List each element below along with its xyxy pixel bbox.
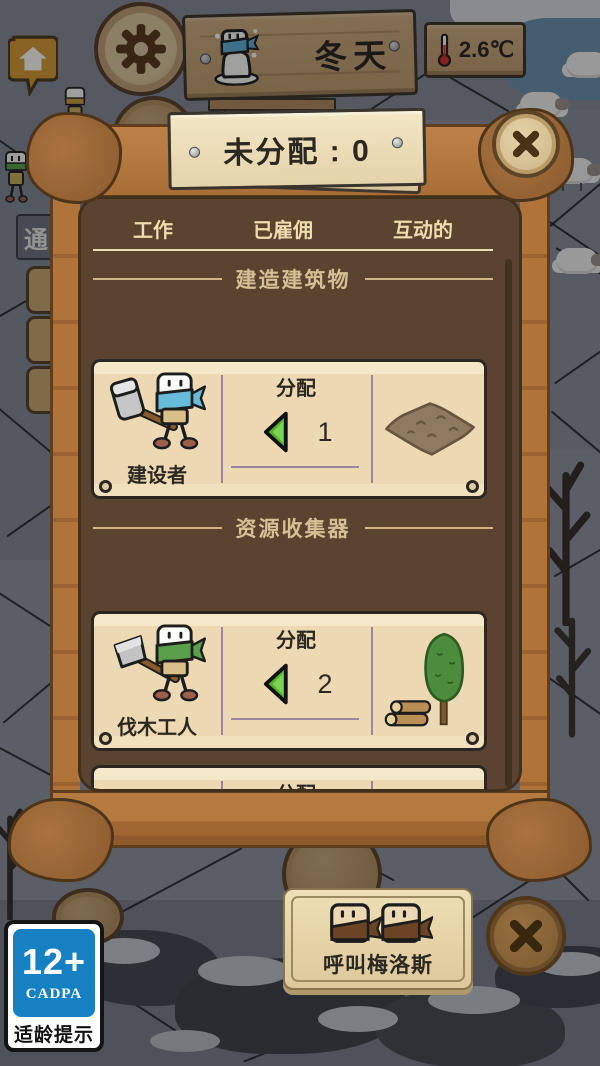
tab-hired[interactable]: 已雇佣: [247, 214, 319, 243]
worker-portrait: 建设者: [94, 362, 220, 496]
nail: [392, 137, 403, 148]
worker-card-lumberjack: 伐木工人 分配 2: [91, 611, 487, 751]
call-melos-label: 呼叫梅洛斯: [285, 949, 471, 979]
assign-label: 分配: [224, 778, 368, 792]
close-footer-button[interactable]: [486, 896, 566, 976]
dirt-plot-icon: [382, 400, 478, 458]
tab-interactive[interactable]: 互动的: [387, 214, 459, 243]
card-divider: [221, 375, 223, 483]
worker-name: 建设者: [94, 459, 220, 488]
divider-line: [93, 527, 222, 529]
scrollbar[interactable]: [505, 259, 512, 787]
call-melos-button[interactable]: 呼叫梅洛斯: [283, 888, 473, 990]
logs-and-tree-icon: [384, 630, 476, 732]
divider-line: [93, 278, 222, 280]
worker-card-builder: 建设者 分配 1: [91, 359, 487, 499]
unassigned-banner: 未分配 : 0: [167, 108, 426, 190]
nail: [189, 147, 200, 158]
age-rating-age: 12+: [22, 944, 86, 980]
worker-portrait: 伐木工人: [94, 614, 220, 748]
assign-controls: 2: [228, 658, 368, 710]
tab-bar: 工作 已雇佣 互动的: [93, 211, 493, 245]
divider-line: [365, 527, 494, 529]
age-rating-org: CADPA: [26, 986, 82, 1003]
assign-label: 分配: [224, 372, 368, 401]
builder-figure: [107, 372, 207, 452]
worker-card-partial: 分配: [91, 765, 487, 792]
frame-handle: [486, 798, 592, 882]
worker-head: [135, 790, 179, 792]
divider-line: [365, 278, 494, 280]
assignment-modal: 未分配 : 0 工作 已雇佣 互动的 建造建筑物: [0, 0, 600, 1066]
assign-controls: 1: [228, 406, 368, 458]
worker-portrait: [94, 768, 220, 792]
section-header-buildings: 建造建筑物: [93, 263, 493, 295]
frame-handle: [26, 112, 122, 204]
two-villagers-icon: [329, 902, 433, 946]
tab-underline: [93, 249, 493, 251]
assigned-count: 1: [314, 417, 336, 448]
lumberjack-figure: [107, 624, 207, 704]
close-modal-button[interactable]: [492, 110, 560, 178]
unassigned-count-label: 未分配 : 0: [223, 126, 371, 173]
age-rating-blue-box: 12+ CADPA: [13, 929, 95, 1017]
assign-label: 分配: [224, 624, 368, 653]
frame-handle: [8, 798, 114, 882]
card-divider: [221, 781, 223, 792]
age-rating-caption: 适龄提示: [8, 1020, 100, 1047]
worker-panel: 工作 已雇佣 互动的 建造建筑物: [78, 196, 522, 792]
frame-left-bar: [50, 192, 80, 794]
frame-right-bar: [520, 192, 550, 794]
card-divider: [371, 781, 373, 792]
tab-work[interactable]: 工作: [127, 214, 179, 243]
game-screen: 冬天 2.6℃ 通 未分配: [0, 0, 600, 1066]
count-underline: [231, 718, 359, 720]
card-divider: [221, 627, 223, 735]
worker-name: 伐木工人: [94, 711, 220, 740]
unassign-arrow-button[interactable]: [260, 662, 290, 706]
assigned-count: 2: [314, 669, 336, 700]
section-header-collectors: 资源收集器: [93, 512, 493, 544]
age-rating-badge: 12+ CADPA 适龄提示: [4, 920, 104, 1052]
frame-bottom-bar: [50, 790, 550, 848]
count-underline: [231, 466, 359, 468]
unassign-arrow-button[interactable]: [260, 410, 290, 454]
